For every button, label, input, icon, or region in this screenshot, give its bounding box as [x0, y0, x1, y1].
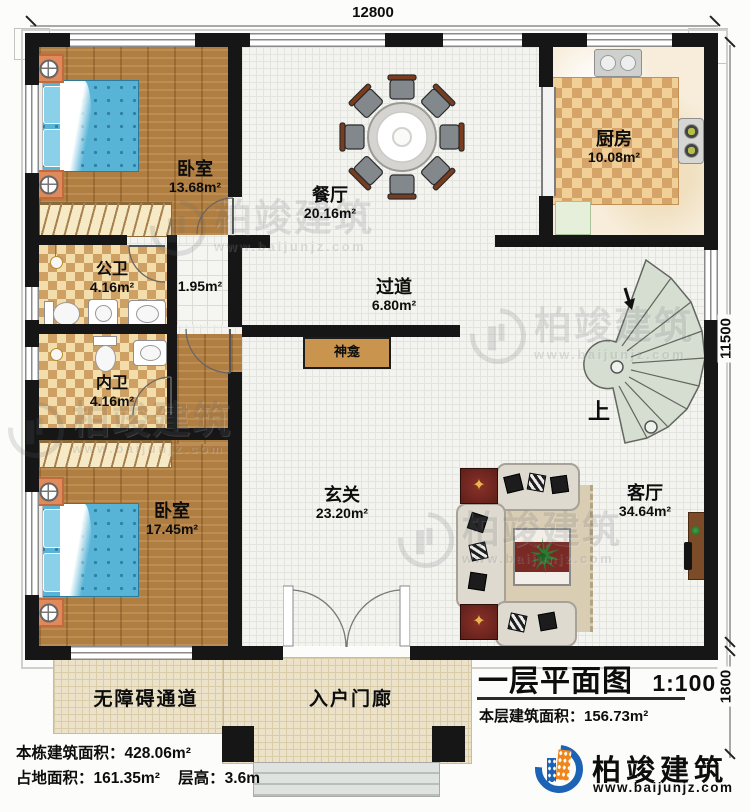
room-label-small-hall: 1.95m²	[178, 278, 222, 294]
sofa-pillow-icon	[527, 473, 547, 493]
wall	[25, 324, 167, 334]
sofa-pillow-icon	[550, 475, 569, 494]
wall	[25, 235, 127, 245]
lamp-icon	[39, 59, 58, 78]
room-area: 4.16m²	[90, 393, 134, 409]
wall	[242, 325, 460, 337]
sofa-icon	[496, 463, 580, 511]
window	[25, 492, 39, 595]
brand-website: www.baijunjz.com	[593, 780, 734, 795]
sink-basin	[620, 55, 636, 71]
porch-pillar	[432, 726, 465, 762]
lamp-icon	[39, 482, 58, 501]
door-arc	[184, 327, 232, 375]
dimension-porch: 1800	[718, 667, 735, 707]
room-area: 17.45m²	[146, 521, 198, 537]
tv-icon	[684, 542, 692, 570]
room-label-kitchen: 厨房 10.08m²	[588, 130, 640, 165]
room-area: 23.20m²	[316, 505, 368, 521]
window	[25, 85, 39, 173]
sofa-icon	[495, 601, 577, 647]
kitchen-sink-icon	[594, 49, 642, 77]
room-area: 4.16m²	[90, 279, 134, 295]
room-area: 34.64m²	[619, 503, 671, 519]
window	[25, 347, 39, 380]
room-name: 卧室	[169, 160, 221, 179]
floor-area-text: 本层建筑面积：156.73m²	[479, 705, 648, 726]
side-table-icon: ✦	[460, 468, 498, 504]
brand-logo-tower	[547, 758, 556, 782]
room-label-bedroom2: 卧室 17.45m²	[146, 502, 198, 537]
window	[71, 646, 192, 660]
room-name: 卧室	[146, 502, 198, 521]
stats-floor-height: 层高：3.6m	[178, 770, 260, 787]
brand-logo-icon	[534, 742, 588, 796]
stove-icon	[678, 118, 704, 164]
plant-icon	[691, 526, 700, 535]
sink-basin	[140, 345, 161, 361]
watermark: 柏竣建筑 www.baijunjz.com	[398, 512, 622, 568]
window	[25, 287, 39, 320]
room-area: 6.80m²	[372, 297, 416, 313]
pendant-light-icon	[50, 348, 63, 361]
room-label-dining: 餐厅 20.16m²	[304, 186, 356, 221]
room-name: 餐厅	[304, 186, 356, 205]
room-area: 1.95m²	[178, 278, 222, 294]
title-underline	[477, 697, 685, 700]
sofa-pillow-icon	[538, 612, 558, 632]
floor-plan: ✦ ✦ 神龛 柏竣建筑 www.baijunjz.com 柏竣建筑 www.ba…	[0, 0, 750, 812]
entrance-double-door	[283, 584, 410, 652]
wall	[192, 646, 283, 660]
kitchen-mat-icon	[555, 201, 591, 235]
blanket-icon	[60, 504, 92, 596]
watermark-site: www.baijunjz.com	[72, 440, 232, 458]
watermark-logo-icon	[387, 501, 466, 580]
room-name: 内卫	[90, 376, 134, 393]
shrine-label: 神龛	[334, 344, 360, 359]
sofa-pillow-icon	[507, 612, 527, 632]
window	[250, 33, 385, 47]
blanket-icon	[60, 81, 92, 171]
stats-footprint: 占地面积：161.35m²	[16, 770, 160, 787]
wall	[25, 646, 71, 660]
side-table-icon: ✦	[460, 604, 498, 640]
dimension-right: 11500	[718, 315, 735, 363]
sofa-pillow-icon	[468, 572, 487, 591]
room-label-bedroom1: 卧室 13.68m²	[169, 160, 221, 195]
room-name: 客厅	[619, 484, 671, 503]
lamp-icon	[39, 175, 58, 194]
porch-pillar	[222, 726, 254, 762]
toilet-bowl-icon	[95, 345, 116, 372]
room-name: 公卫	[90, 262, 134, 279]
sofa-pillow-icon	[503, 473, 524, 494]
toilet-bowl-icon	[53, 302, 80, 326]
plan-scale: 1:100	[652, 670, 716, 696]
porch-steps	[253, 762, 440, 797]
lamp-icon	[39, 603, 58, 622]
dimension-line-top	[30, 25, 718, 27]
sliding-door	[541, 87, 556, 196]
shrine-box: 神龛	[303, 337, 391, 369]
bed-icon	[36, 80, 139, 172]
room-name: 过道	[372, 278, 416, 297]
window	[704, 250, 718, 320]
window	[587, 33, 672, 47]
dimension-top: 12800	[330, 4, 416, 21]
sink-icon	[133, 340, 167, 366]
burner-icon	[684, 124, 699, 139]
wall	[704, 33, 718, 660]
room-label-living: 客厅 34.64m²	[619, 484, 671, 519]
plan-title-text: 一层平面图	[478, 665, 633, 698]
room-name: 厨房	[588, 130, 640, 149]
room-label-foyer: 玄关 23.20m²	[316, 486, 368, 521]
room-name: 玄关	[316, 486, 368, 505]
sink-basin	[136, 305, 159, 323]
room-label-ramp: 无障碍通道	[93, 684, 198, 711]
watermark: 柏竣建筑 www.baijunjz.com	[470, 308, 694, 364]
sink-basin	[600, 55, 616, 71]
window	[70, 33, 195, 47]
watermark-logo-icon	[0, 391, 75, 470]
watermark-name: 柏竣建筑	[534, 308, 694, 346]
window	[443, 33, 522, 47]
room-area: 13.68m²	[169, 179, 221, 195]
watermark-logo-icon	[459, 297, 538, 376]
room-name: 无障碍通道	[93, 689, 198, 710]
watermark-site: www.baijunjz.com	[534, 346, 694, 364]
washer-door	[95, 305, 112, 322]
bed-icon	[36, 503, 139, 597]
room-area: 10.08m²	[588, 149, 640, 165]
room-area: 20.16m²	[304, 205, 356, 221]
room-label-corridor: 过道 6.80m²	[372, 278, 416, 313]
watermark: 柏竣建筑 www.baijunjz.com	[8, 402, 232, 458]
pendant-light-icon	[50, 256, 63, 269]
wall	[539, 47, 553, 87]
wall	[228, 47, 242, 197]
room-name: 入户门廊	[309, 689, 393, 710]
room-label-porch: 入户门廊	[309, 684, 393, 711]
stats-building-area: 本栋建筑面积：428.06m²	[16, 741, 191, 763]
watermark-site: www.baijunjz.com	[462, 550, 622, 568]
room-label-bath-inner: 内卫 4.16m²	[90, 376, 134, 409]
watermark-name: 柏竣建筑	[462, 512, 622, 550]
watermark-logo-icon	[139, 189, 218, 268]
room-label-bath-public: 公卫 4.16m²	[90, 262, 134, 295]
wall	[495, 235, 704, 247]
watermark-site: www.baijunjz.com	[214, 238, 374, 256]
stats-line2: 占地面积：161.35m² 层高：3.6m	[16, 766, 260, 788]
plan-title: 一层平面图 1:100	[478, 656, 716, 700]
stairs-up-label: 上	[588, 394, 610, 426]
burner-icon	[684, 143, 699, 158]
